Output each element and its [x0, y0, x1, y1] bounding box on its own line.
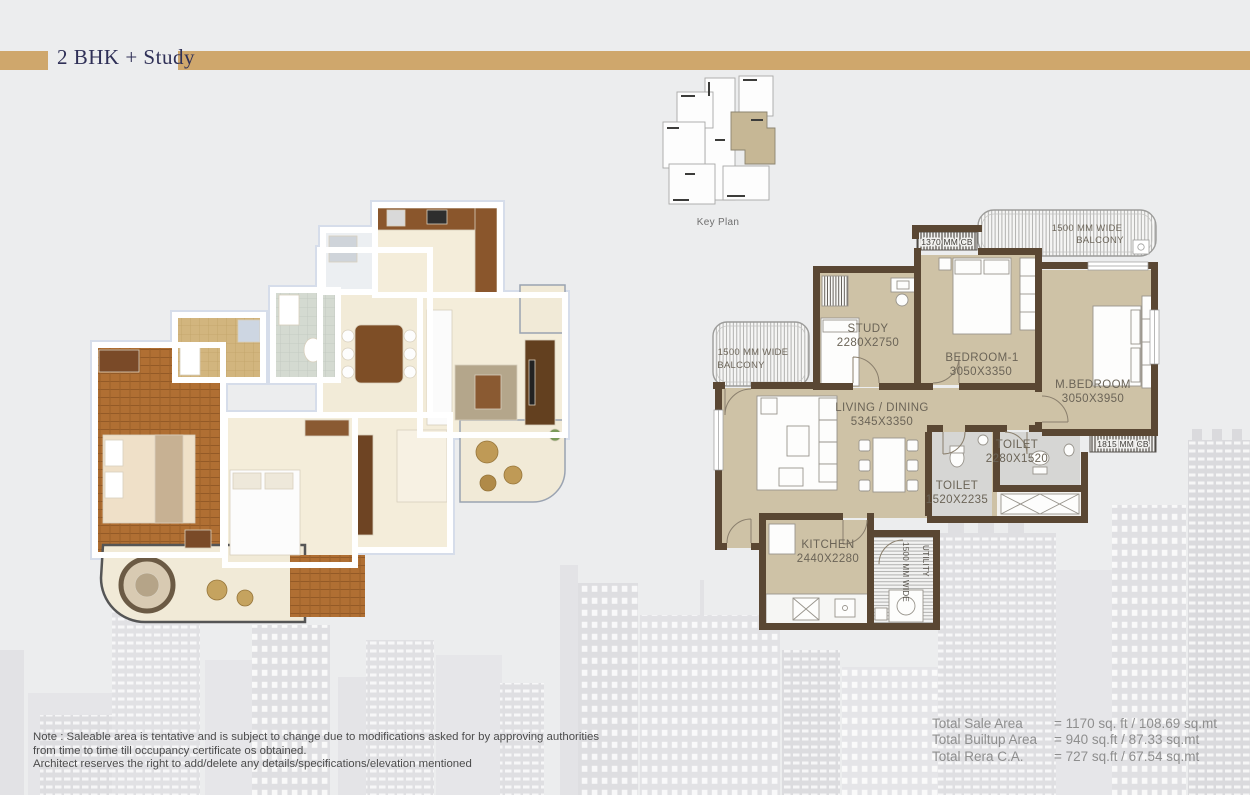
toilet-right-dim: 2280X1520 [986, 453, 1048, 465]
bedroom1-label: BEDROOM-1 [945, 352, 1018, 364]
total-sale-area-value: = 1170 sq. ft / 108.69 sq.mt [1054, 716, 1217, 731]
total-builtup-area-label: Total Builtup Area [932, 732, 1054, 748]
study-dim: 2280X2750 [837, 337, 899, 349]
living-label: LIVING / DINING [835, 402, 929, 414]
brochure-page: 2 BHK + Study Key Plan [0, 0, 1250, 795]
note-line-1: Note : Saleable area is tentative and is… [33, 731, 599, 745]
balcony-top-label-line1: 1500 MM WIDE [1052, 223, 1123, 234]
total-rera-ca-row: Total Rera C.A.= 727 sq.ft / 67.54 sq.mt [932, 749, 1217, 765]
toilet-right-label: TOILET [996, 439, 1038, 451]
balcony-left-label-line1: 1500 MM WIDE [718, 347, 789, 358]
study-label: STUDY [848, 323, 889, 335]
kitchen-label: KITCHEN [801, 539, 854, 551]
header-gold-bar-left [0, 51, 48, 70]
header-gold-bar-right [178, 51, 1250, 70]
disclaimer-note: Note : Saleable area is tentative and is… [33, 731, 599, 772]
balcony-left-label-line2: BALCONY [717, 360, 765, 371]
3d-floor-plan-render [55, 190, 650, 665]
note-line-2: from time to time till occupancy certifi… [33, 745, 599, 759]
total-sale-area-row: Total Sale Area= 1170 sq. ft / 108.69 sq… [932, 716, 1217, 732]
note-line-3: Architect reserves the right to add/dele… [33, 758, 599, 772]
total-rera-ca-value: = 727 sq.ft / 67.54 sq.mt [1054, 749, 1199, 764]
bedroom1-dim: 3050X3350 [950, 366, 1012, 378]
cb-top-label: 1370 MM CB [921, 237, 973, 247]
kitchen-dim: 2440X2280 [797, 553, 859, 565]
utility-label-line2: 1500 MM WIDE [901, 542, 910, 602]
2d-floor-plan: 1500 MM WIDE BALCONY 1370 MM CB STUDY 22… [695, 200, 1175, 630]
living-dim: 5345X3350 [851, 416, 913, 428]
page-title: 2 BHK + Study [57, 45, 195, 70]
total-builtup-area-value: = 940 sq.ft / 87.33 sq.mt [1054, 732, 1199, 747]
mbedroom-label: M.BEDROOM [1055, 379, 1131, 391]
toilet-left-label: TOILET [936, 480, 978, 492]
area-totals: Total Sale Area= 1170 sq. ft / 108.69 sq… [932, 716, 1217, 765]
total-sale-area-label: Total Sale Area [932, 716, 1054, 732]
toilet-left-dim: 1520X2235 [926, 494, 988, 506]
key-plan-drawing [655, 70, 781, 210]
total-rera-ca-label: Total Rera C.A. [932, 749, 1054, 765]
cb-right-label: 1815 MM CB [1097, 439, 1149, 449]
mbedroom-dim: 3050X3950 [1062, 393, 1124, 405]
utility-label-line1: UTILITY [921, 545, 930, 577]
total-builtup-area-row: Total Builtup Area= 940 sq.ft / 87.33 sq… [932, 732, 1217, 748]
balcony-top-label-line2: BALCONY [1076, 235, 1124, 246]
